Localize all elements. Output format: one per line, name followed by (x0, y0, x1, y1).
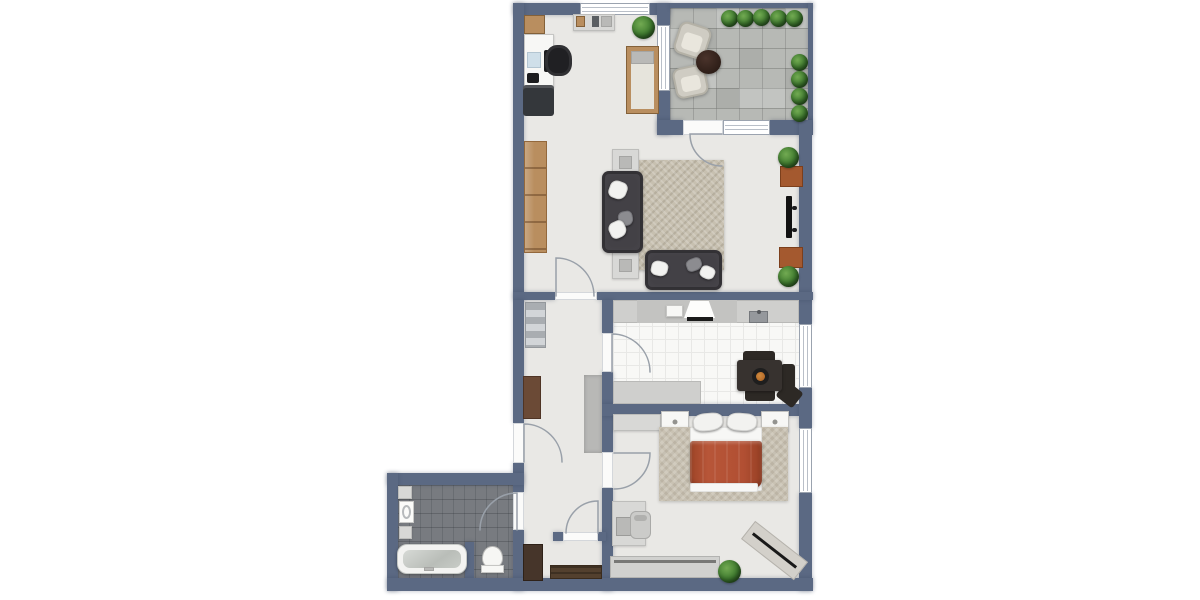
fruit-bowl (752, 368, 769, 385)
bed-pillow (726, 412, 757, 433)
wall-bathroom-left (387, 473, 398, 591)
wall-living-bottom-right (597, 292, 813, 300)
terrace-paver-dark (716, 88, 739, 108)
shelf-item-box (592, 16, 599, 27)
wall-terrace-right (808, 3, 813, 120)
bedroom-wardrobe (610, 556, 720, 578)
bathtub-fixture (424, 567, 434, 571)
kitchen-door-gap (602, 333, 613, 372)
tv-foot (792, 206, 797, 210)
storage-cabinet (523, 544, 543, 581)
wall-bathroom-top (387, 473, 524, 485)
shelf-item-tray (601, 16, 612, 27)
tv-foot (792, 228, 797, 232)
terrace-shrub (791, 88, 808, 105)
terrace-shrub (791, 105, 808, 122)
living-plant (778, 147, 799, 168)
bed-foot-blanket (690, 483, 758, 492)
storage-bench (550, 565, 602, 579)
terrace-shrub (791, 54, 808, 71)
terrace-shrub (737, 10, 754, 27)
terrace-paver-dark (739, 48, 762, 68)
wall-living-bottom-left (513, 292, 555, 300)
terrace-door-gap (683, 120, 723, 135)
terrace-shrub (770, 10, 787, 27)
terrace-window (723, 120, 770, 135)
wall-left-upper (513, 3, 524, 300)
hall-cabinet (523, 376, 541, 419)
terrace-paver-light (739, 88, 762, 108)
wall-storage-left (553, 532, 563, 541)
wall-terrace-bottom-left (657, 120, 683, 135)
tv (786, 196, 792, 238)
wall-bottom (387, 578, 813, 591)
bedroom-door-gap (602, 452, 613, 488)
tv-plant-pot (780, 166, 803, 187)
office-printer (523, 85, 554, 116)
hall-runner-rug (584, 375, 602, 453)
daybed-pillow (631, 51, 654, 64)
hall-shoe-shelf (525, 302, 546, 348)
terrace-shrub (721, 10, 738, 27)
living-plant (778, 266, 799, 287)
terrace-coffee-table (696, 50, 721, 74)
office-plant (632, 16, 655, 39)
terrace-shrub (786, 10, 803, 27)
terrace-shrub (753, 9, 770, 26)
side-table-top (619, 259, 632, 272)
washing-machine (399, 501, 414, 523)
bed-duvet (690, 441, 762, 488)
bedroom-window (799, 428, 812, 493)
living-sideboard (524, 141, 547, 253)
front-door-gap (513, 423, 524, 463)
wall-hall-kitchen-upper (602, 300, 613, 333)
tv-plant-pot (779, 247, 803, 268)
wall-storage-right (598, 532, 606, 541)
office-phone (527, 73, 539, 83)
bathroom-door-gap (513, 492, 524, 530)
bedroom-plant (718, 560, 741, 583)
office-keyboard (527, 52, 541, 68)
kitchen-window (799, 324, 812, 388)
shelf-item-books (576, 16, 585, 27)
office-chair (545, 45, 572, 76)
cutting-board (666, 305, 683, 317)
kitchen-counter-bottom (613, 381, 701, 404)
wall-office-terrace-top (657, 3, 670, 25)
terrace-paver-light (762, 88, 785, 108)
terrace-shrub (791, 71, 808, 88)
side-table-top (619, 156, 632, 169)
office-corner-cabinet (524, 15, 545, 34)
bath-unit (398, 486, 412, 499)
bedroom-laptop (616, 517, 631, 536)
kitchen-sink (749, 311, 768, 323)
wall-right-low (799, 493, 812, 591)
apartment-floor-plan (0, 0, 1200, 600)
storage-door-gap (563, 532, 598, 541)
bedroom-dresser (613, 414, 661, 431)
bath-unit (399, 526, 412, 539)
bedroom-desk-chair (630, 511, 651, 539)
toilet-tank (481, 565, 504, 573)
wall-terrace-top (670, 3, 813, 8)
cooktop (687, 317, 713, 321)
floor-plan-shapes (0, 0, 1200, 600)
living-door-gap (555, 292, 597, 300)
